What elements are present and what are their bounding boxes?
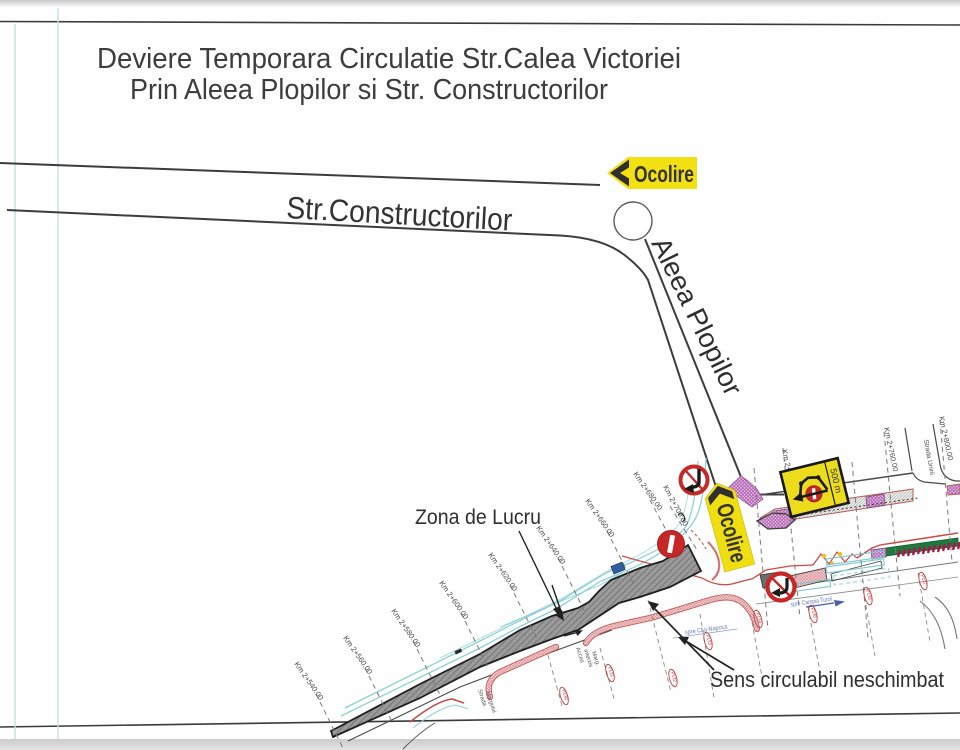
- svg-text:Ocolire: Ocolire: [634, 161, 694, 187]
- svg-text:Prin Aleea Plopilor si Str. Co: Prin Aleea Plopilor si Str. Constructori…: [130, 74, 608, 106]
- svg-text:Deviere Temporara Circulatie S: Deviere Temporara Circulatie Str.Calea V…: [97, 43, 681, 75]
- svg-text:Zona de Lucru: Zona de Lucru: [415, 506, 541, 529]
- svg-text:Sens circulabil neschimbat: Sens circulabil neschimbat: [710, 667, 944, 692]
